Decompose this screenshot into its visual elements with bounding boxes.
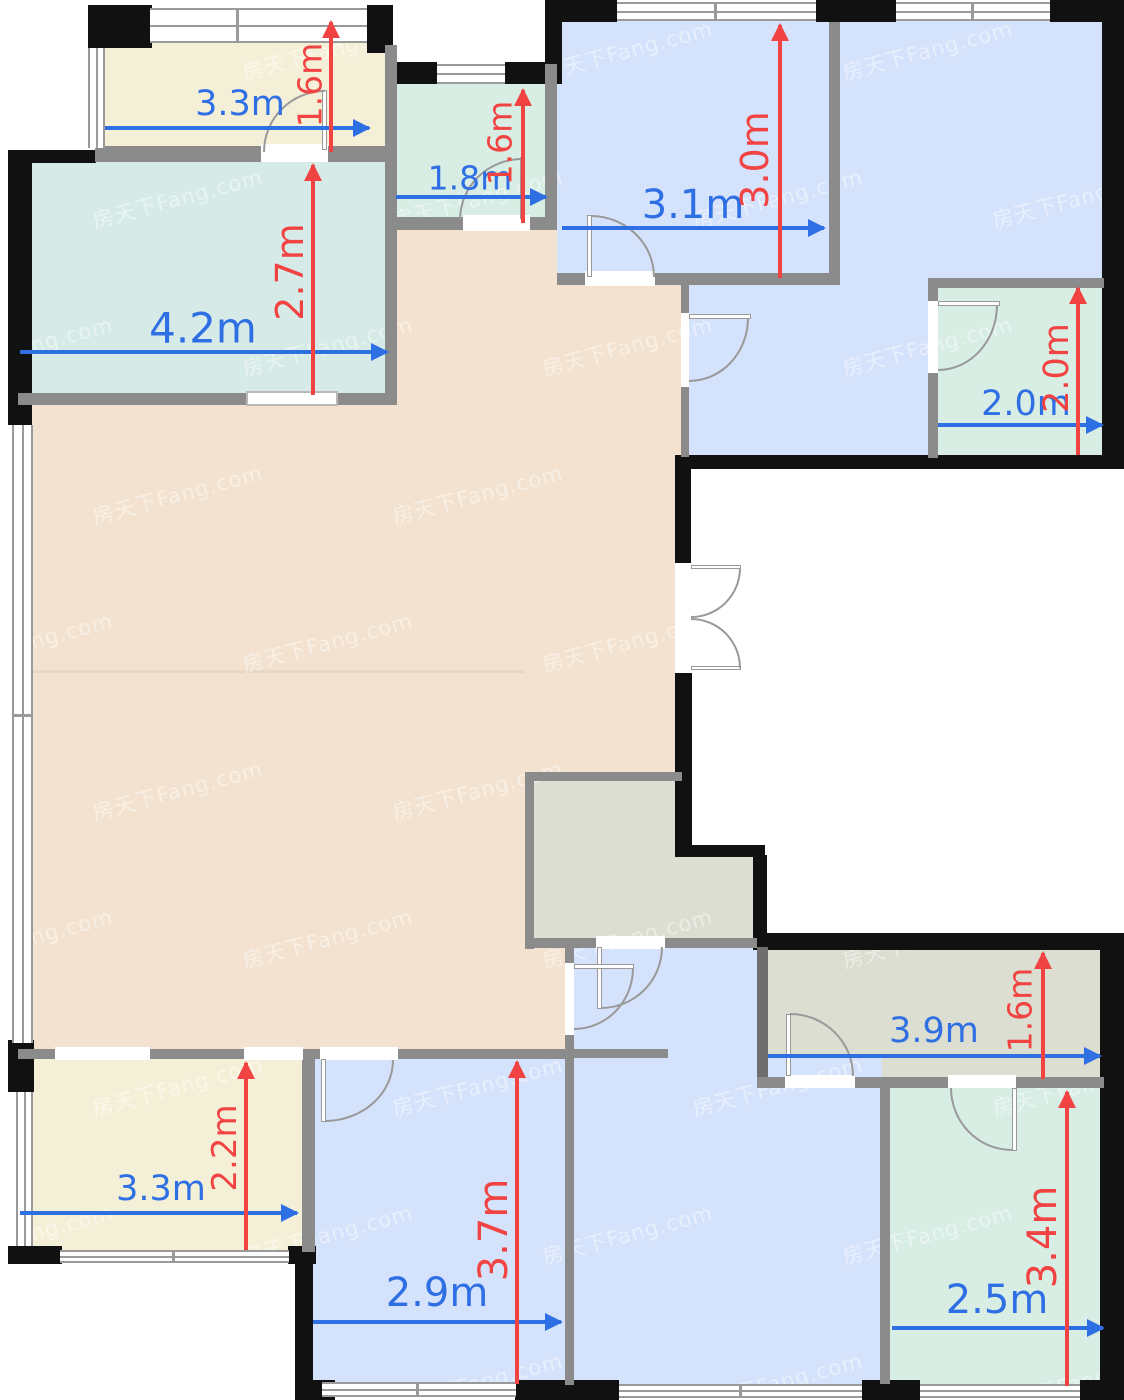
dim-label: 2.0m [1037, 323, 1077, 413]
wall [525, 772, 682, 781]
wall [675, 455, 691, 565]
dim-label: 1.6m [481, 101, 520, 186]
window [12, 425, 33, 1043]
door-gap [244, 1047, 303, 1060]
wall [816, 0, 896, 22]
window-divider [172, 1250, 175, 1263]
dim-arrow-bath-bottom-right-w [892, 1326, 1103, 1330]
dim-arrow-balcony-top-h [329, 22, 333, 152]
window-divider [714, 2, 717, 21]
watermark-text: 房天下Fang.com [89, 161, 266, 235]
dim-label: 2.2m [205, 1104, 245, 1191]
wall [880, 1086, 890, 1384]
wall [862, 1380, 920, 1400]
wall [757, 947, 768, 1088]
watermark-text: 房天下Fang.com [89, 457, 266, 531]
wall-opening [246, 391, 338, 406]
door-gap [948, 1075, 1016, 1088]
window [437, 64, 505, 84]
dim-arrow-bath-top-h [521, 90, 525, 223]
watermark-text: 房天下Fang.com [839, 605, 1016, 679]
dim-label: 3.3m [116, 1169, 206, 1209]
wall [574, 1049, 668, 1058]
wall [675, 671, 692, 851]
dim-arrow-hallway-h [1041, 953, 1045, 1079]
window [322, 1382, 516, 1397]
dim-arrow-hallway-w [768, 1054, 1100, 1058]
wall [753, 933, 1124, 950]
wall [8, 1040, 34, 1092]
door-leaf [1012, 1088, 1017, 1151]
wall [829, 22, 840, 285]
wall [295, 1248, 313, 1400]
dim-label: 4.2m [149, 304, 257, 353]
dim-label: 3.4m [1020, 1186, 1066, 1289]
door-gap [55, 1047, 150, 1060]
wall [550, 0, 617, 22]
dim-label: 3.9m [889, 1011, 979, 1051]
wall [95, 146, 393, 162]
window-divider [971, 2, 974, 21]
window-divider [12, 714, 33, 717]
door-gap [675, 563, 692, 673]
window-divider [416, 1382, 419, 1397]
wall [302, 1057, 315, 1252]
wall [1102, 0, 1124, 469]
window-divider [236, 8, 239, 43]
watermark-text: 房天下Fang.com [239, 605, 416, 679]
wall [675, 845, 765, 857]
dim-label: 3.1m [642, 182, 745, 228]
wall [1080, 1380, 1124, 1400]
door-gap [320, 1047, 398, 1060]
door-gap [785, 1075, 855, 1088]
watermark-text: 房天下Fang.com [689, 753, 866, 827]
watermark-text: 房天下Fang.com [389, 753, 566, 827]
window [88, 48, 105, 148]
watermark-text: 房天下Fang.com [839, 13, 1016, 87]
watermark-text: 房天下Fang.com [839, 1197, 1016, 1271]
dim-label: 3.7m [471, 1179, 517, 1282]
window [920, 1384, 1080, 1398]
wall [18, 393, 395, 405]
wall [525, 772, 534, 949]
dim-label: 3.0m [733, 111, 777, 208]
wall [8, 1246, 62, 1264]
dim-label: 1.6m [291, 43, 330, 128]
window [16, 1092, 33, 1246]
door-gap [681, 313, 689, 387]
wall [8, 150, 32, 425]
dim-arrow-bedroom-top-right-h [778, 25, 782, 278]
dim-label: 1.6m [1001, 968, 1040, 1053]
watermark-text: 房天下Fang.com [89, 753, 266, 827]
floor-plan: 房天下Fang.com房天下Fang.com房天下Fang.com房天下Fang… [0, 0, 1124, 1400]
watermark-text: 房天下Fang.com [389, 457, 566, 531]
dim-label: 3.3m [195, 84, 285, 124]
wall [88, 5, 152, 48]
window-divider [739, 1384, 742, 1398]
wall [683, 455, 1124, 469]
dim-arrow-bedroom-bottom-w [313, 1320, 561, 1324]
watermark-text: 房天下Fang.com [389, 1049, 566, 1123]
door-gap [928, 301, 938, 373]
watermark-text: 房天下Fang.com [89, 1345, 266, 1400]
watermark-text: 房天下Fang.com [539, 13, 716, 87]
watermark-text: 房天下Fang.com [989, 753, 1124, 827]
dim-label: 2.7m [268, 223, 312, 320]
dim-arrow-balcony-bottom-w [20, 1211, 297, 1215]
watermark-text: 房天下Fang.com [239, 901, 416, 975]
door-gap [565, 963, 574, 1035]
